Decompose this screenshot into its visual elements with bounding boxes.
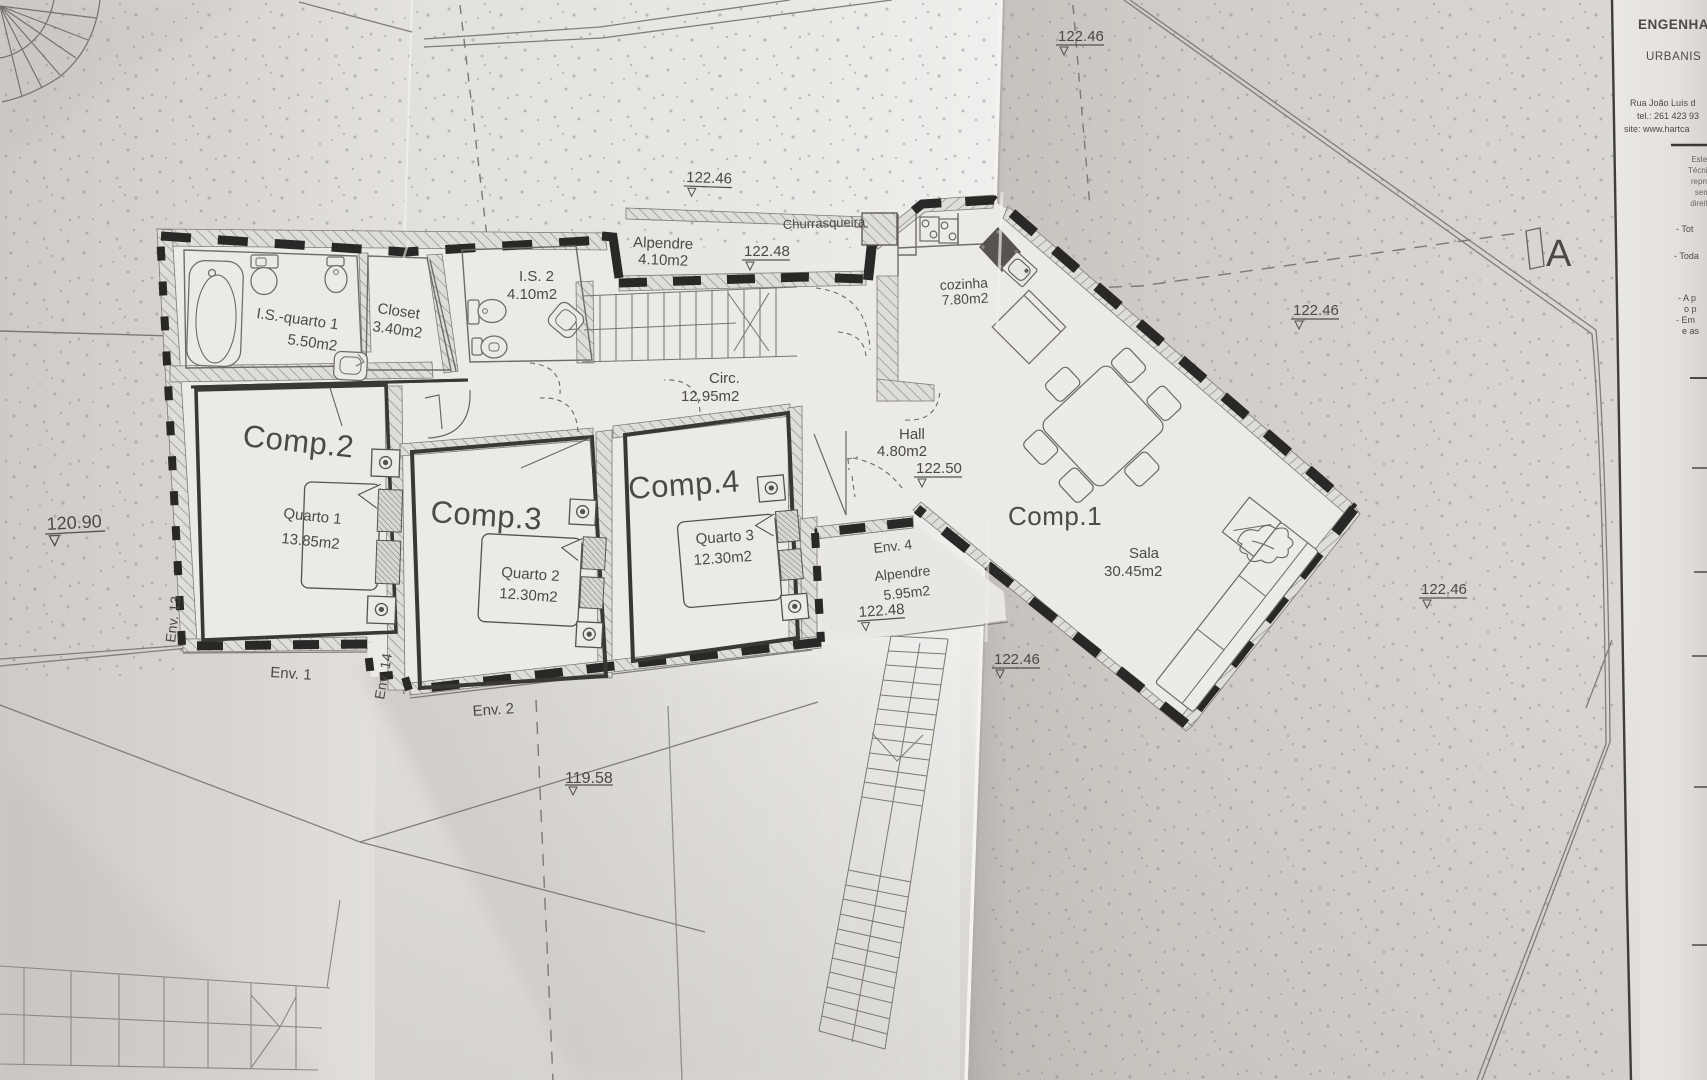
- svg-text:122.46: 122.46: [1058, 28, 1104, 45]
- svg-text:reprod: reprod: [1691, 177, 1707, 186]
- svg-text:Rua João Luís d: Rua João Luís d: [1630, 98, 1696, 108]
- svg-text:4.10m2: 4.10m2: [638, 251, 689, 270]
- svg-text:- Toda: - Toda: [1674, 251, 1699, 261]
- svg-text:sem: sem: [1695, 188, 1707, 197]
- svg-text:122.46: 122.46: [1293, 302, 1339, 319]
- svg-text:URBANIS: URBANIS: [1646, 51, 1701, 63]
- svg-text:122.48: 122.48: [744, 243, 790, 260]
- svg-text:Hall: Hall: [899, 426, 925, 443]
- svg-text:ENGENHA: ENGENHA: [1638, 17, 1707, 32]
- svg-text:4.80m2: 4.80m2: [877, 443, 927, 460]
- svg-text:7.80m2: 7.80m2: [941, 290, 989, 308]
- svg-text:4.10m2: 4.10m2: [507, 286, 557, 303]
- svg-text:A: A: [1546, 233, 1572, 275]
- svg-text:- Em: - Em: [1676, 315, 1695, 325]
- svg-text:120.90: 120.90: [46, 511, 102, 534]
- svg-text:Churrasqueira: Churrasqueira: [783, 214, 867, 232]
- svg-text:12.95m2: 12.95m2: [681, 388, 739, 405]
- svg-text:site: www.hartca: site: www.hartca: [1624, 124, 1690, 134]
- svg-text:Este d: Este d: [1691, 155, 1707, 164]
- svg-text:- Tot: - Tot: [1676, 224, 1694, 234]
- svg-text:Env. 1: Env. 1: [270, 664, 313, 684]
- svg-text:122.50: 122.50: [916, 460, 962, 477]
- svg-text:Técnico: Técnico: [1688, 166, 1707, 175]
- svg-text:Sala: Sala: [1129, 545, 1160, 562]
- svg-text:122.46: 122.46: [994, 651, 1040, 668]
- svg-text:Env. 2: Env. 2: [472, 700, 515, 720]
- svg-text:30.45m2: 30.45m2: [1104, 563, 1162, 580]
- svg-text:o p: o p: [1684, 304, 1697, 314]
- svg-text:- A p: - A p: [1678, 293, 1696, 303]
- svg-text:Circ.: Circ.: [709, 370, 740, 387]
- svg-text:e as: e as: [1682, 326, 1700, 336]
- svg-text:Comp.1: Comp.1: [1008, 501, 1102, 531]
- svg-text:122.46: 122.46: [1421, 581, 1467, 598]
- svg-text:122.46: 122.46: [686, 169, 732, 188]
- svg-text:tel.: 261 423 93: tel.: 261 423 93: [1637, 111, 1699, 121]
- svg-text:direito: direito: [1690, 199, 1707, 208]
- svg-text:I.S. 2: I.S. 2: [519, 268, 554, 285]
